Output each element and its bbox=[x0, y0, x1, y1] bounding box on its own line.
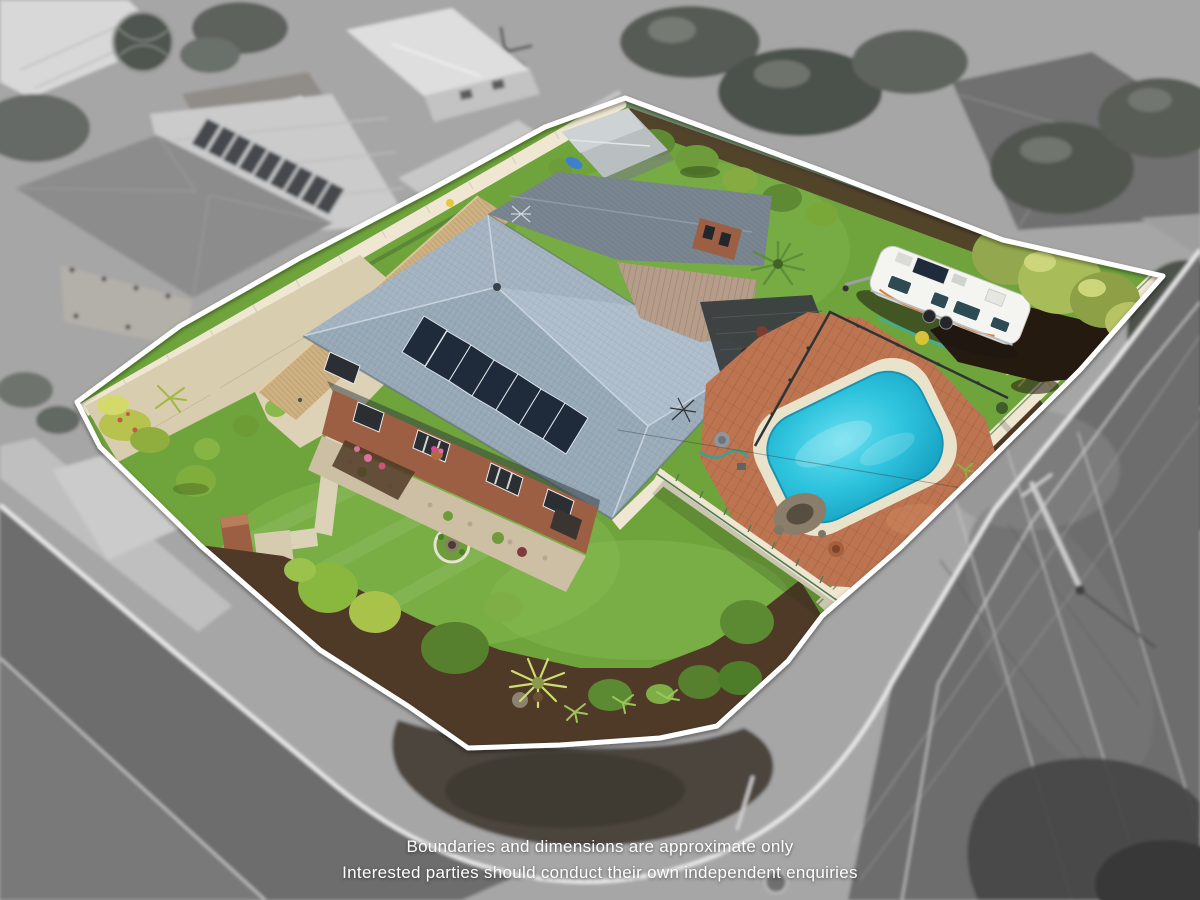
disclaimer-line-2: Interested parties should conduct their … bbox=[0, 860, 1200, 886]
wheelie-bin bbox=[915, 331, 929, 345]
aerial-property-photo: Boundaries and dimensions are approximat… bbox=[0, 0, 1200, 900]
cordyline-plant bbox=[517, 547, 527, 557]
roof-vent bbox=[493, 283, 501, 291]
trampoline bbox=[113, 12, 173, 72]
disclaimer: Boundaries and dimensions are approximat… bbox=[0, 834, 1200, 886]
disclaimer-line-1: Boundaries and dimensions are approximat… bbox=[0, 834, 1200, 860]
deck-toy bbox=[446, 199, 454, 207]
aerial-scene bbox=[0, 0, 1200, 900]
